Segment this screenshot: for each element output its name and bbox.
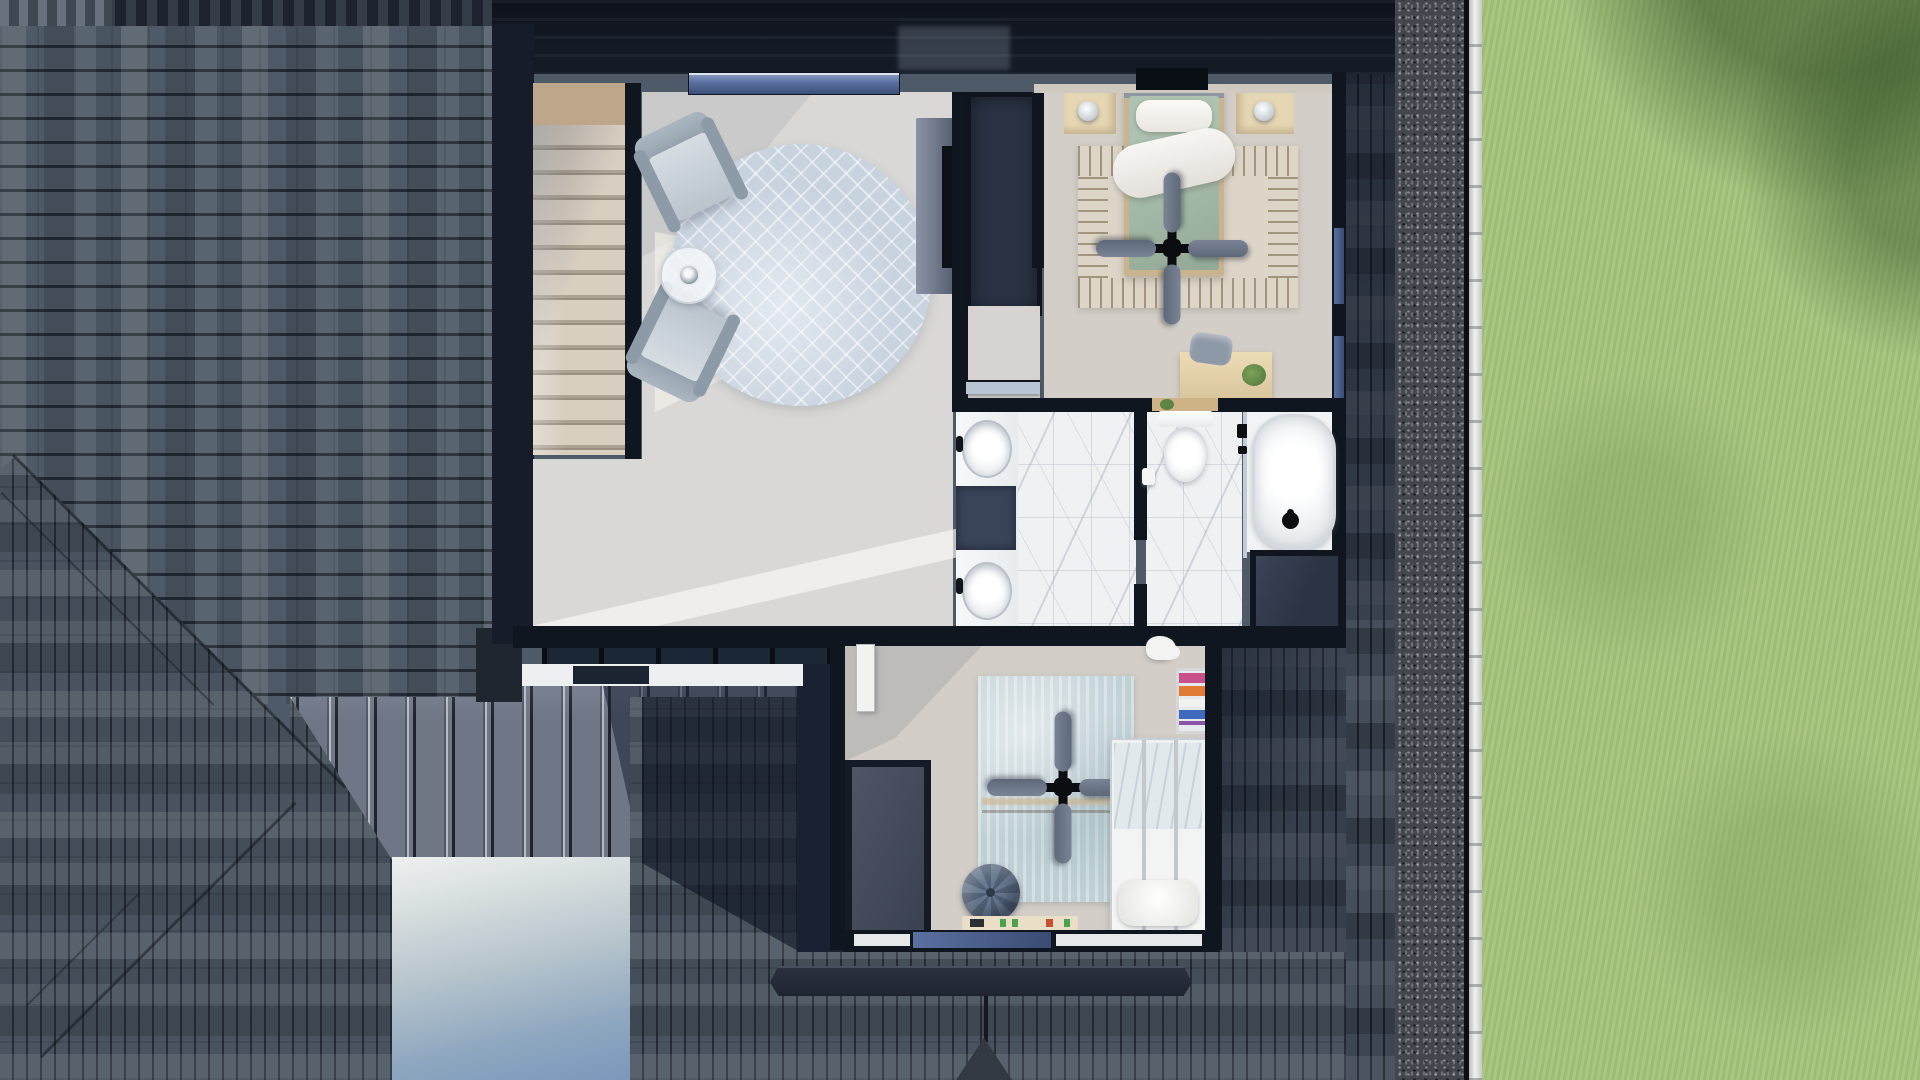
bed2-blanket [1114,743,1202,829]
book-purple [1179,721,1206,725]
toy-piece-dark [970,919,984,927]
lawn [1482,0,1920,1080]
fan-blade [1096,240,1156,257]
bed1-pillow [1136,100,1212,132]
south-sill-left [854,934,910,946]
living-south-wall [513,626,958,648]
stair-landing [533,83,625,128]
sink-faucet-top [956,436,963,452]
shelf-plant [1160,399,1174,410]
aerial-floorplan-render [0,0,1920,1080]
fan-hub [1054,778,1072,796]
gravel-border [1395,0,1464,1080]
ceiling-fan-bedroom1 [1092,168,1252,328]
bathtub [1252,414,1336,550]
right-edge-shadow [1346,0,1395,620]
fan-hub [1163,239,1181,257]
rug-border-right [1268,176,1298,278]
desk-plant [1242,364,1266,386]
ridge-cap-bar [770,966,1192,996]
fan-blade [1164,264,1181,324]
driveway [392,857,634,1080]
toilet-tank [1158,411,1213,427]
stair-steps [533,125,625,455]
nightstand-right [1236,90,1294,134]
vanity-sink-top [962,420,1012,478]
bathroom-north-wall [952,398,1346,412]
bathroom-floor-left [1016,412,1136,628]
bath-partition-wall-lower [1134,584,1147,628]
east-wall-window-1 [1334,228,1344,304]
toy-piece-green-2 [1012,919,1018,927]
fan-blade [1055,803,1072,863]
bed2 [1110,738,1210,938]
shower-hardware-2 [1238,446,1247,454]
roof-valley-seam [984,996,988,1042]
bedroom2-open-closet [845,760,931,944]
bathroom-door-open [966,380,1040,394]
fan-blade [1164,172,1181,232]
shadow-east-of-bedroom2 [1220,630,1346,952]
bedroom2-south-window [913,932,1051,948]
bed2-pillow [1118,880,1198,926]
bedroom2-east-wall [1205,628,1222,950]
west-roof-edge-band [492,24,534,644]
toy-piece-green-3 [1064,919,1070,927]
table-lamp [1078,101,1098,121]
vanity-counter [956,412,1018,628]
toilet-paper-roll [1142,468,1155,485]
table-lamp [678,264,700,286]
vanity-cabinet [956,486,1016,550]
pouf-center-button [986,888,995,897]
toy-piece-green [1000,919,1006,927]
book-orange [1179,686,1206,696]
south-fascia-band [513,664,803,686]
book-white [1179,699,1206,707]
book-pink [1179,673,1206,683]
south-window-band [542,648,854,664]
toy-piece-red [1046,919,1053,927]
table-lamp [1254,101,1274,121]
desk-chair [1188,331,1234,367]
clerestory-skylight [688,72,900,95]
vanity-sink-bottom [962,562,1012,620]
fan-blade [987,779,1047,796]
paver-curb [1469,0,1482,1080]
bedroom2-north-wall-stub-right [928,630,966,646]
bedroom1-west-wall [1032,92,1044,268]
window-over-bed [1136,68,1208,90]
bedroom2-west-wall [830,628,845,950]
book-blue [1179,710,1206,719]
sink-faucet-bottom [956,578,963,594]
south-sill-right [1056,934,1202,946]
plush-toy [1146,636,1176,660]
walk-in-closet [966,92,1042,316]
north-roof-light-patch [898,26,1010,70]
fan-blade [1188,240,1248,257]
tub-filler-faucet [1282,512,1299,529]
bedroom2-open-door [856,644,875,712]
toy-strip [962,916,1078,930]
north-roof-band-cap [0,0,112,26]
fascia-vent-block [573,666,649,684]
nightstand-left [1064,90,1116,134]
fan-blade [1055,711,1072,771]
